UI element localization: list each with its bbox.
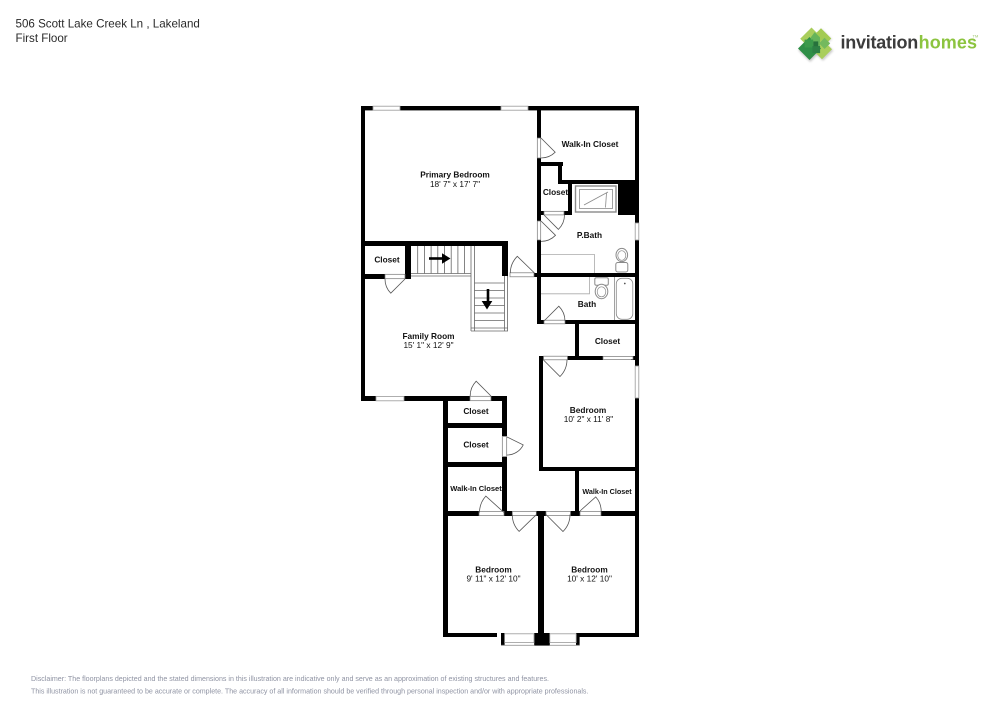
svg-text:invitation: invitation	[841, 32, 919, 52]
svg-text:Walk-In Closet: Walk-In Closet	[582, 487, 632, 496]
svg-text:TM: TM	[973, 34, 979, 39]
svg-text:Closet: Closet	[543, 187, 569, 197]
svg-text:18' 7" x 17' 7": 18' 7" x 17' 7"	[430, 179, 480, 189]
svg-text:homes: homes	[919, 32, 978, 52]
svg-text:10' 2" x 11' 8": 10' 2" x 11' 8"	[564, 414, 614, 424]
svg-text:Walk-In Closet: Walk-In Closet	[450, 484, 502, 493]
svg-text:9' 11" x 12' 10": 9' 11" x 12' 10"	[466, 574, 520, 584]
svg-text:P.Bath: P.Bath	[577, 230, 602, 240]
svg-text:Walk-In Closet: Walk-In Closet	[562, 139, 619, 149]
svg-text:Bath: Bath	[578, 299, 596, 309]
svg-text:506 Scott Lake Creek Ln , Lake: 506 Scott Lake Creek Ln , Lakeland	[16, 18, 200, 31]
svg-text:Disclaimer: The floorplans dep: Disclaimer: The floorplans depicted and …	[31, 675, 549, 683]
svg-text:Closet: Closet	[374, 255, 400, 265]
svg-text:Closet: Closet	[463, 406, 489, 416]
svg-text:Closet: Closet	[595, 336, 621, 346]
svg-text:First Floor: First Floor	[16, 32, 68, 45]
svg-text:This illustration is not guara: This illustration is not guaranteed to b…	[31, 688, 588, 696]
svg-text:15' 1" x 12' 9": 15' 1" x 12' 9"	[403, 340, 453, 350]
svg-text:Closet: Closet	[463, 440, 489, 450]
svg-text:10' x 12' 10": 10' x 12' 10"	[567, 574, 612, 584]
